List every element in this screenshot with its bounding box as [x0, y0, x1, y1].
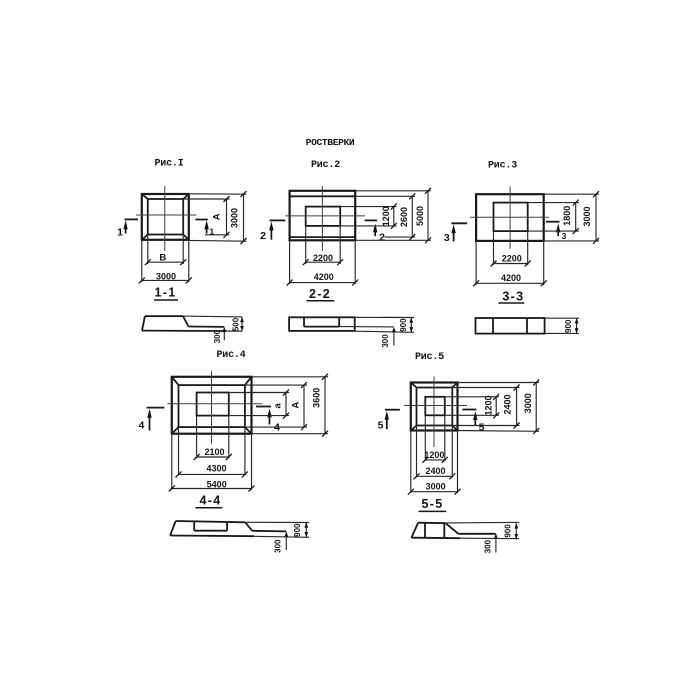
svg-text:Рис.5: Рис.5: [415, 352, 444, 363]
svg-text:900: 900: [399, 318, 408, 332]
svg-text:900: 900: [293, 523, 302, 537]
svg-text:2200: 2200: [502, 254, 522, 264]
svg-text:РОСТВЕРКИ: РОСТВЕРКИ: [306, 137, 355, 148]
svg-text:300: 300: [274, 539, 283, 553]
svg-text:1200: 1200: [483, 395, 493, 415]
svg-text:2400: 2400: [425, 466, 445, 476]
svg-text:4-4: 4-4: [200, 494, 222, 508]
svg-text:B: B: [159, 252, 166, 263]
svg-text:3: 3: [562, 231, 567, 241]
svg-text:1: 1: [117, 227, 123, 239]
svg-text:300: 300: [483, 539, 492, 553]
svg-text:3000: 3000: [156, 272, 176, 282]
svg-text:1800: 1800: [562, 206, 572, 226]
svg-text:a: a: [273, 403, 284, 409]
svg-text:2: 2: [379, 231, 385, 243]
svg-text:1-1: 1-1: [155, 286, 177, 300]
svg-text:3000: 3000: [582, 206, 592, 226]
svg-text:5000: 5000: [415, 206, 425, 226]
svg-text:500: 500: [232, 317, 241, 331]
svg-text:300: 300: [381, 334, 390, 348]
svg-text:2: 2: [260, 230, 266, 242]
svg-text:Рис.2: Рис.2: [311, 160, 340, 171]
svg-text:2100: 2100: [204, 447, 224, 457]
svg-text:2200: 2200: [313, 253, 333, 263]
svg-text:4300: 4300: [206, 464, 226, 474]
svg-text:A: A: [290, 402, 301, 409]
svg-text:5400: 5400: [207, 479, 227, 489]
svg-text:2-2: 2-2: [309, 287, 331, 301]
svg-text:5: 5: [479, 422, 485, 434]
svg-text:Рис.3: Рис.3: [488, 160, 517, 171]
svg-text:4200: 4200: [314, 272, 334, 282]
svg-text:2600: 2600: [399, 207, 409, 227]
svg-text:1200: 1200: [381, 206, 391, 226]
svg-text:Рис.I: Рис.I: [154, 158, 183, 169]
svg-text:900: 900: [503, 524, 512, 538]
svg-text:3000: 3000: [230, 208, 240, 228]
svg-text:900: 900: [564, 319, 573, 333]
svg-text:4200: 4200: [501, 273, 521, 283]
svg-text:1200: 1200: [424, 450, 444, 460]
svg-text:4: 4: [138, 420, 144, 432]
svg-text:300: 300: [213, 329, 222, 343]
svg-text:2400: 2400: [503, 394, 513, 414]
svg-text:A: A: [212, 213, 223, 220]
svg-text:3000: 3000: [523, 393, 533, 413]
svg-text:3000: 3000: [426, 482, 446, 492]
svg-text:3: 3: [444, 232, 450, 244]
svg-text:3600: 3600: [311, 388, 321, 408]
svg-text:3-3: 3-3: [502, 290, 524, 304]
svg-text:Рис.4: Рис.4: [216, 350, 245, 361]
svg-text:5: 5: [378, 420, 384, 432]
svg-text:5-5: 5-5: [422, 497, 444, 511]
